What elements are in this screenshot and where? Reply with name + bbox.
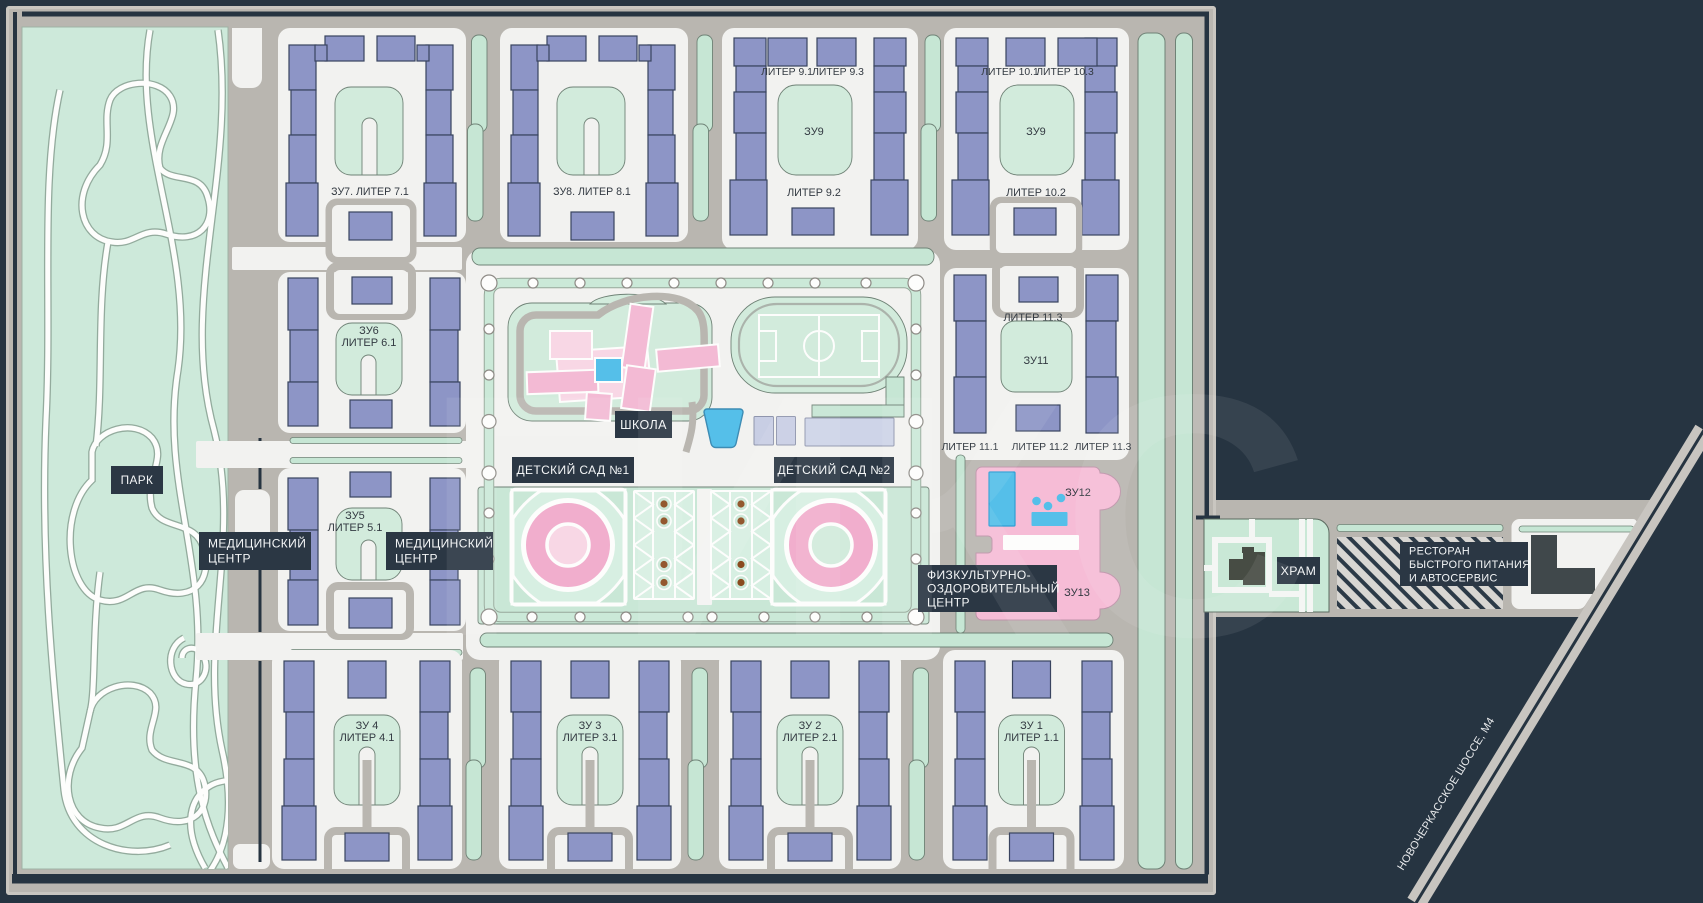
- svg-text:ЗУ 4: ЗУ 4: [356, 720, 379, 732]
- svg-text:ЦЕНТР: ЦЕНТР: [208, 552, 251, 566]
- svg-text:ЛИТЕР 10.2: ЛИТЕР 10.2: [1006, 187, 1066, 199]
- svg-text:ЗУ8. ЛИТЕР 8.1: ЗУ8. ЛИТЕР 8.1: [553, 186, 631, 198]
- svg-text:ЗУ 3: ЗУ 3: [579, 720, 602, 732]
- svg-text:ЛИТЕР 10.1: ЛИТЕР 10.1: [981, 67, 1039, 78]
- svg-text:МЕДИЦИНСКИЙ: МЕДИЦИНСКИЙ: [208, 536, 306, 551]
- svg-text:ЗУ7. ЛИТЕР 7.1: ЗУ7. ЛИТЕР 7.1: [331, 186, 409, 198]
- svg-text:ГИКС: ГИКС: [424, 324, 1307, 709]
- svg-text:ЛИТЕР 2.1: ЛИТЕР 2.1: [783, 732, 838, 744]
- svg-text:И АВТОСЕРВИС: И АВТОСЕРВИС: [1409, 572, 1498, 584]
- svg-text:ЛИТЕР 6.1: ЛИТЕР 6.1: [342, 337, 397, 349]
- svg-text:ЛИТЕР 1.1: ЛИТЕР 1.1: [1004, 732, 1059, 744]
- svg-text:ПАРК: ПАРК: [121, 473, 154, 487]
- svg-text:ЛИТЕР 10.3: ЛИТЕР 10.3: [1036, 67, 1094, 78]
- svg-text:ЛИТЕР 3.1: ЛИТЕР 3.1: [563, 732, 618, 744]
- svg-text:ЗУ6: ЗУ6: [359, 325, 379, 337]
- svg-text:ЛИТЕР 9.2: ЛИТЕР 9.2: [787, 187, 841, 199]
- svg-text:ЗУ5: ЗУ5: [345, 510, 365, 522]
- svg-text:ЗУ 2: ЗУ 2: [799, 720, 822, 732]
- svg-text:ЛИТЕР 4.1: ЛИТЕР 4.1: [340, 732, 395, 744]
- svg-text:ЛИТЕР 9.3: ЛИТЕР 9.3: [812, 67, 864, 78]
- svg-text:ЗУ 1: ЗУ 1: [1020, 720, 1043, 732]
- svg-text:ЛИТЕР 5.1: ЛИТЕР 5.1: [328, 522, 383, 534]
- svg-text:ЗУ9: ЗУ9: [1026, 126, 1046, 138]
- svg-text:ЛИТЕР 9.1: ЛИТЕР 9.1: [761, 67, 813, 78]
- svg-text:БЫСТРОГО ПИТАНИЯ: БЫСТРОГО ПИТАНИЯ: [1409, 559, 1530, 571]
- svg-text:ЗУ9: ЗУ9: [804, 126, 824, 138]
- svg-text:РЕСТОРАН: РЕСТОРАН: [1409, 545, 1470, 557]
